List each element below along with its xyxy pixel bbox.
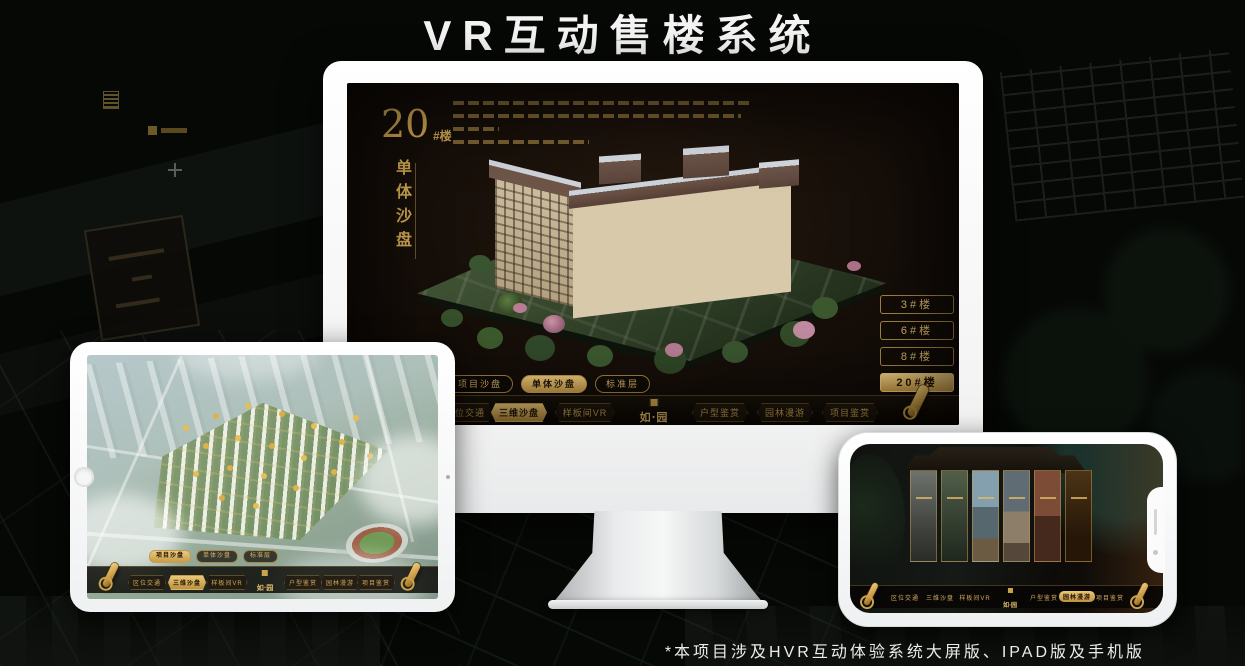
tab-standard-floor[interactable]: 标准层 — [243, 550, 278, 563]
gallery-panel-garden[interactable] — [941, 470, 968, 562]
tab-project-sandbox[interactable]: 项目沙盘 — [149, 550, 191, 563]
nav-item-3d-sandbox[interactable]: 三维沙盘 — [926, 593, 954, 602]
ipad: 项目沙盘 单体沙盘 标准层 区位交通 三维沙盘 样板间VR 如·园 户型鉴赏 园… — [70, 342, 455, 612]
phone-nav-bar: 区位交通 三维沙盘 样板间VR 如·园 户型鉴赏 园林漫游 项目鉴赏 — [850, 585, 1163, 608]
nav-item-garden-roam[interactable]: 园林漫游 — [1059, 591, 1095, 602]
scroll-menu-icon[interactable] — [404, 562, 422, 588]
background-building-icon — [104, 92, 118, 108]
building-number-badges — [183, 425, 189, 431]
phone: 区位交通 三维沙盘 样板间VR 如·园 户型鉴赏 园林漫游 项目鉴赏 — [838, 432, 1177, 627]
gallery-panel-courtyard[interactable] — [910, 470, 937, 562]
page-title: VR互动售楼系统 — [0, 2, 1245, 63]
panel-label — [947, 497, 963, 499]
garden-shadow — [850, 454, 905, 584]
footnote-text: *本项目涉及HVR互动体验系统大屏版、IPAD版及手机版 — [665, 638, 1145, 662]
nav-item-3d-sandbox[interactable]: 三维沙盘 — [168, 575, 206, 590]
nav-item-showroom-vr[interactable]: 样板间VR — [206, 575, 247, 590]
nav-item-unit-gallery[interactable]: 户型鉴赏 — [1030, 593, 1058, 602]
ipad-screen[interactable]: 项目沙盘 单体沙盘 标准层 区位交通 三维沙盘 样板间VR 如·园 户型鉴赏 园… — [87, 355, 438, 599]
nav-item-location-traffic[interactable]: 区位交通 — [891, 593, 919, 602]
nav-item-project-gallery[interactable]: 项目鉴赏 — [1096, 593, 1124, 602]
ipad-sandbox-tabs: 项目沙盘 单体沙盘 标准层 — [149, 550, 278, 563]
background-plaque — [84, 215, 200, 341]
monitor-stand-base — [548, 600, 768, 609]
ruyuan-seal-icon — [262, 570, 268, 576]
background-logo-mark — [148, 126, 157, 135]
scroll-menu-icon[interactable] — [863, 582, 879, 606]
nav-item-garden-roam[interactable]: 园林漫游 — [321, 575, 359, 590]
background-logo-text — [161, 128, 187, 133]
ruyuan-logo: 如·园 — [257, 570, 273, 595]
gallery-panel-interior[interactable] — [1065, 470, 1092, 562]
tab-single-sandbox[interactable]: 单体沙盘 — [196, 550, 238, 563]
phone-camera-dot — [1153, 550, 1158, 555]
ruyuan-logo-text: 如·园 — [1003, 602, 1017, 609]
gallery-panel-autumn[interactable] — [1034, 470, 1061, 562]
panel-label — [1009, 497, 1025, 499]
phone-speaker — [1154, 509, 1157, 535]
ruyuan-logo-text: 如·园 — [257, 583, 273, 592]
panel-label — [978, 497, 994, 499]
plaque-line — [116, 298, 160, 309]
nav-item-showroom-vr[interactable]: 样板间VR — [959, 593, 990, 602]
phone-notch — [1147, 487, 1165, 573]
ipad-camera-dot — [446, 475, 450, 479]
ipad-home-button[interactable] — [74, 467, 94, 487]
gallery-panel-building-sky[interactable] — [972, 470, 999, 562]
ruyuan-logo: 如·园 — [1003, 588, 1017, 612]
panel-label — [1040, 497, 1056, 499]
ruyuan-seal-icon — [1008, 588, 1013, 593]
panel-label — [916, 497, 932, 499]
plaque-line — [108, 248, 164, 261]
phone-screen[interactable]: 区位交通 三维沙盘 样板间VR 如·园 户型鉴赏 园林漫游 项目鉴赏 — [850, 444, 1163, 613]
panel-label — [1071, 497, 1087, 499]
nav-item-location-traffic[interactable]: 区位交通 — [128, 575, 166, 590]
gallery-panel-facade[interactable] — [1003, 470, 1030, 562]
nav-item-project-gallery[interactable]: 项目鉴赏 — [357, 575, 395, 590]
nav-item-unit-gallery[interactable]: 户型鉴赏 — [284, 575, 322, 590]
scroll-menu-icon[interactable] — [102, 562, 120, 588]
sparkle-icon — [168, 163, 182, 177]
scroll-menu-icon[interactable] — [1133, 582, 1149, 606]
plaque-line — [132, 274, 152, 281]
ipad-nav-bar: 区位交通 三维沙盘 样板间VR 如·园 户型鉴赏 园林漫游 项目鉴赏 — [87, 566, 438, 593]
background-building-sketch — [1000, 48, 1244, 221]
